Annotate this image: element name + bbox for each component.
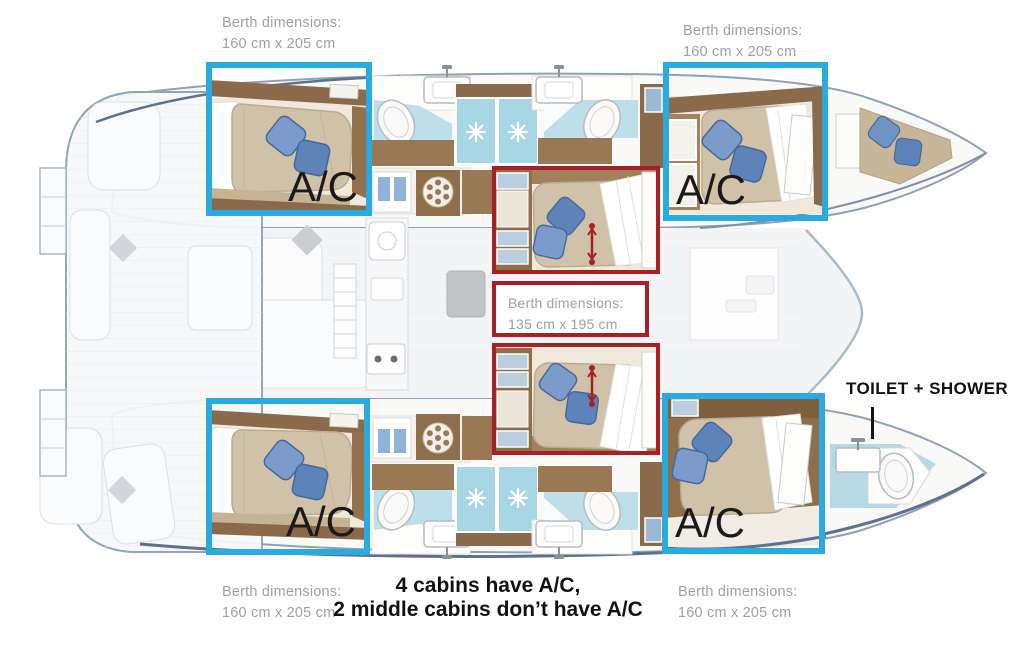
shower-bottom xyxy=(456,466,538,546)
bathroom-bottom-right xyxy=(532,462,668,559)
galley-modules-bottom xyxy=(370,414,492,462)
galley-counter xyxy=(366,218,408,390)
yacht-layout-diagram: Berth dimensions: 160 cm x 205 cm Berth … xyxy=(0,0,1024,648)
middle-berth-label-box: Berth dimensions: 135 cm x 195 cm xyxy=(492,281,649,337)
ac-label: A/C xyxy=(286,501,356,543)
ac-highlight-box-top-left: A/C xyxy=(206,62,372,216)
ac-note: 4 cabins have A/C, 2 middle cabins don’t… xyxy=(288,574,688,621)
berth-label-top-left: Berth dimensions: 160 cm x 205 cm xyxy=(222,13,341,55)
swim-steps xyxy=(40,168,66,476)
ac-label: A/C xyxy=(675,502,745,544)
nav-cabinet xyxy=(690,248,778,340)
ac-label: A/C xyxy=(676,169,746,211)
galley-modules-top xyxy=(370,168,492,216)
berth-label-top-right: Berth dimensions: 160 cm x 205 cm xyxy=(683,21,802,63)
ac-label: A/C xyxy=(288,166,358,208)
middle-cabin-box-top xyxy=(492,166,660,274)
ac-highlight-box-bottom-left: A/C xyxy=(206,398,370,555)
toilet-shower-pointer-line xyxy=(871,407,874,439)
berth-label-middle: Berth dimensions: 135 cm x 195 cm xyxy=(496,285,645,335)
shower-top xyxy=(456,84,538,164)
ac-highlight-box-top-right: A/C xyxy=(663,62,828,221)
stairs xyxy=(334,264,356,358)
berth-label-bottom-right: Berth dimensions: 160 cm x 205 cm xyxy=(678,582,797,624)
ac-highlight-box-bottom-right: A/C xyxy=(662,393,825,554)
salon-table xyxy=(447,271,485,317)
middle-cabin-box-bottom xyxy=(492,343,660,455)
toilet-shower-label: TOILET + SHOWER xyxy=(846,379,1008,399)
